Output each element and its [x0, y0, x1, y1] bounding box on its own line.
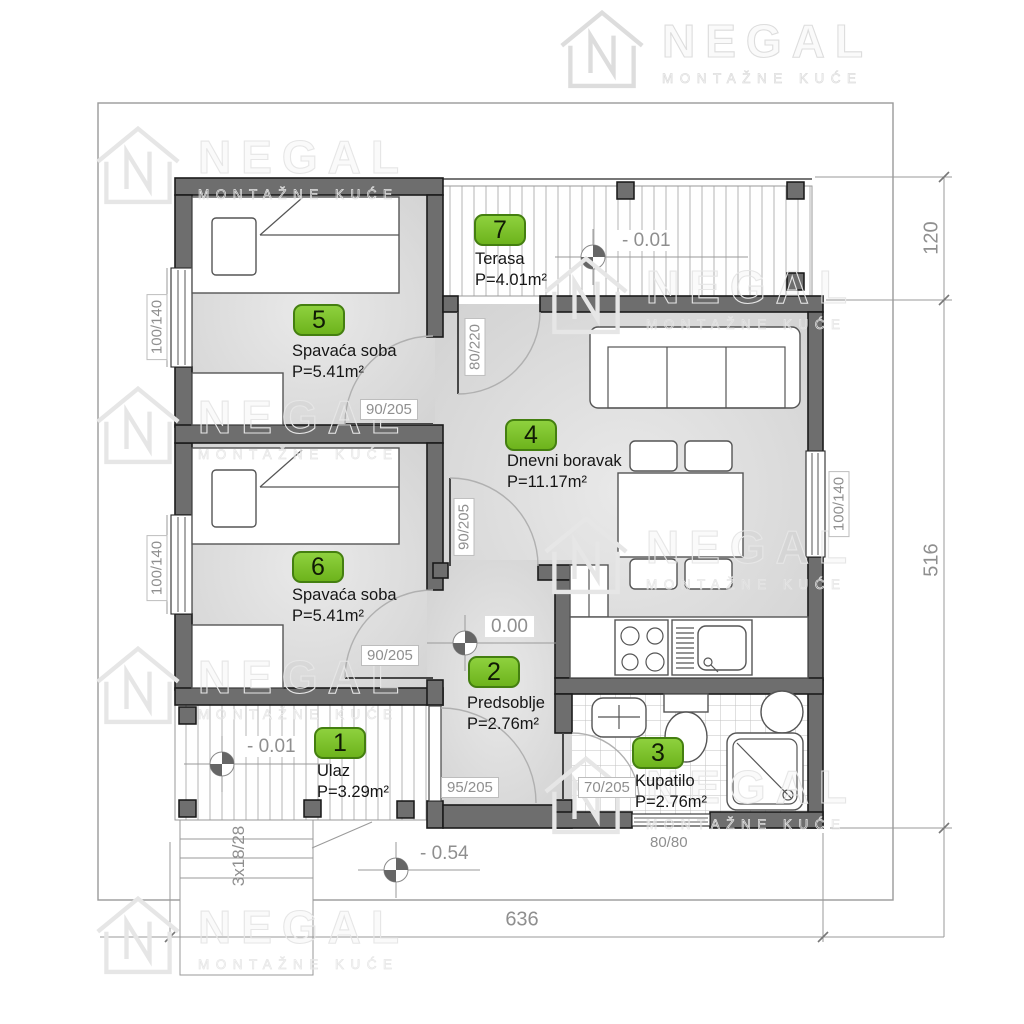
kitchen-sink-icon	[672, 620, 752, 675]
label-room6-window: 100/140	[147, 535, 168, 601]
elevation-label-porch: - 0.01	[241, 736, 302, 757]
label-room6-door: 90/205	[361, 645, 419, 666]
floor-plan: NEGAL MONTAŽNE KUĆE NEGALMONTAŽNE KUĆE N…	[0, 0, 1024, 1024]
label-bath-door: 70/205	[578, 777, 636, 798]
label-living-window: 100/140	[829, 471, 850, 537]
shower-icon	[727, 733, 803, 810]
room-label-spavaca-soba-6: Spavaća sobaP=5.41m²	[292, 585, 397, 627]
bed-room6	[192, 448, 399, 544]
room-badge-dnevni-boravak: 4	[505, 419, 557, 451]
room-badge-kupatilo: 3	[632, 737, 684, 769]
room-label-terasa: TerasaP=4.01m²	[475, 249, 547, 291]
dimension-total-width: 636	[505, 909, 538, 932]
sofa	[590, 327, 800, 408]
elevation-label-ground: - 0.54	[414, 843, 475, 864]
dresser-room6	[192, 625, 283, 688]
bath-window	[632, 814, 710, 826]
label-living-door: 90/205	[454, 498, 475, 556]
label-terrace-door: 80/220	[465, 318, 486, 376]
room-label-kupatilo: KupatiloP=2.76m²	[635, 771, 707, 813]
room-label-dnevni-boravak: Dnevni boravakP=11.17m²	[507, 451, 622, 493]
dimension-stairs: 3x18/28	[229, 826, 249, 887]
room-badge-spavaca-soba-6: 6	[292, 551, 344, 583]
living-window	[806, 451, 825, 557]
room-badge-spavaca-soba-5: 5	[293, 304, 345, 336]
label-room5-window: 100/140	[147, 294, 168, 360]
floor-plan-drawing	[0, 0, 1024, 1024]
elevation-label-terrace: - 0.01	[616, 230, 677, 251]
bed-room5	[192, 197, 399, 293]
room5-window	[167, 268, 192, 367]
dimension-main-depth: 516	[921, 543, 944, 576]
room-badge-predsoblje: 2	[468, 656, 520, 688]
elevation-label-hall: 0.00	[485, 616, 534, 637]
dimension-terrace-depth: 120	[921, 221, 944, 254]
room-label-ulaz: UlazP=3.29m²	[317, 761, 389, 803]
room-badge-ulaz: 1	[314, 727, 366, 759]
bath-sink-icon	[592, 698, 646, 737]
dresser-room5	[192, 373, 283, 425]
label-entry-door: 95/205	[441, 777, 499, 798]
room-label-predsoblje: PredsobljeP=2.76m²	[467, 693, 545, 735]
room6-window	[167, 515, 192, 614]
entry-walkway	[180, 878, 313, 975]
label-room5-door: 90/205	[360, 399, 418, 420]
entry-stairs	[180, 820, 372, 878]
boiler-icon	[761, 691, 803, 733]
room-label-spavaca-soba-5: Spavaća sobaP=5.41m²	[292, 341, 397, 383]
label-bath-window: 80/80	[645, 833, 693, 852]
room-badge-terasa: 7	[474, 214, 526, 246]
stove-icon	[615, 620, 668, 675]
